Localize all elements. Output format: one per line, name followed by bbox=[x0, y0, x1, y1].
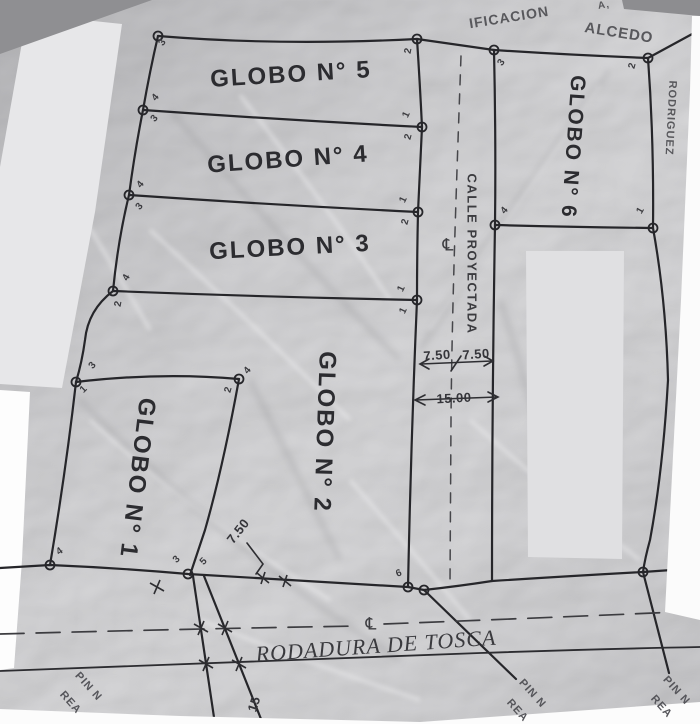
redaction-box-right bbox=[526, 251, 624, 559]
plan-linework bbox=[0, 0, 700, 724]
survey-plan-photo: GLOBO N° 5GLOBO N° 4GLOBO N° 3GLOBO N° 2… bbox=[0, 0, 700, 724]
